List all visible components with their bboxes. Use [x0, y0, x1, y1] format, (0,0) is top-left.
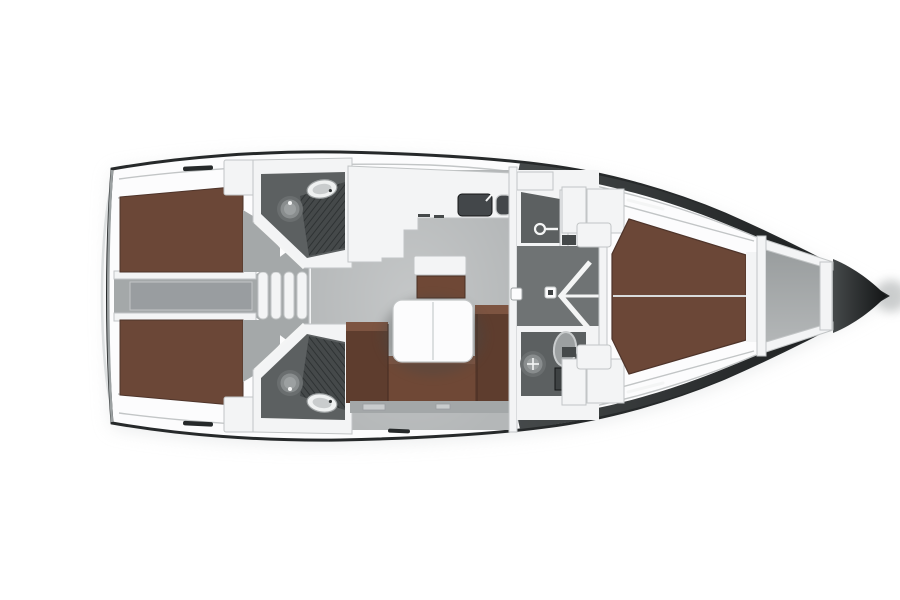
locker-handle [363, 404, 385, 410]
drawer-handle [418, 214, 430, 217]
salon-table [381, 296, 485, 376]
anchor-locker-bar [820, 262, 832, 330]
step-tread [271, 272, 281, 319]
locker-handle [436, 404, 450, 409]
shower-locker [517, 172, 553, 190]
nav-seat-cushion [417, 276, 465, 298]
passage-floor [517, 246, 599, 330]
galley-sink-icon [458, 194, 492, 216]
toilet-icon [520, 351, 546, 377]
anchor-locker [757, 236, 833, 356]
bedside-cabinet [577, 223, 611, 247]
sofa-right-cap [475, 305, 512, 314]
latch-keep [548, 290, 553, 295]
aft-berth [120, 186, 243, 272]
door-latch-icon [511, 288, 522, 300]
locker-gap [562, 235, 576, 245]
berth-head-shelf [746, 252, 757, 342]
step-tread [284, 272, 294, 319]
step-tread [297, 272, 307, 319]
head-counter [258, 160, 345, 174]
step-tread [258, 272, 268, 319]
nav-seat [414, 256, 466, 298]
yacht-floorplan [0, 0, 900, 600]
sofa-right-segment [475, 305, 512, 403]
drawer-handle [434, 215, 444, 218]
bow-bulkhead [757, 236, 766, 356]
engine-hatch [130, 282, 252, 310]
forward-passage [511, 246, 601, 330]
shower-floor [521, 192, 560, 243]
bow-cone [833, 259, 886, 333]
yacht-floorplan-stage [0, 0, 900, 600]
toilet-icon [277, 196, 303, 222]
nav-seat-top [414, 256, 466, 275]
deck-hatch-icon [388, 429, 410, 434]
